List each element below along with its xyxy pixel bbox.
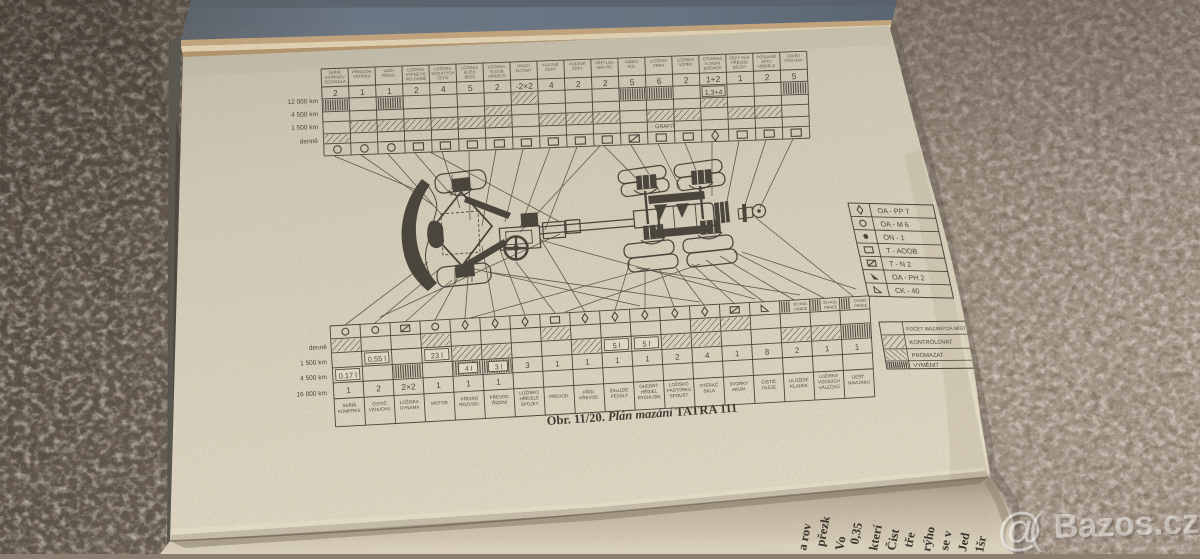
svg-text:20 HOD.: 20 HOD. (793, 302, 808, 307)
svg-text:VZPĚR: VZPĚR (679, 61, 693, 66)
svg-text:KOL: KOL (628, 64, 637, 69)
svg-text:0,17 l: 0,17 l (338, 371, 357, 381)
svg-text:4 500 km: 4 500 km (300, 374, 327, 382)
svg-text:T - AOOB: T - AOOB (885, 246, 918, 256)
svg-text:5: 5 (630, 77, 635, 87)
svg-text:4: 4 (441, 84, 446, 94)
svg-text:PRÁCE: PRÁCE (824, 305, 838, 310)
svg-text:VÁLEČKŮ: VÁLEČKŮ (819, 383, 840, 390)
svg-text:23 l: 23 l (431, 351, 444, 361)
svg-text:57HOD.: 57HOD. (853, 298, 867, 303)
svg-text:1+2: 1+2 (706, 74, 721, 85)
svg-text:BOČNICE: BOČNICE (704, 65, 723, 71)
svg-text:2: 2 (376, 383, 382, 393)
svg-text:5: 5 (792, 71, 797, 81)
svg-text:2: 2 (495, 82, 500, 92)
svg-text:2: 2 (333, 88, 338, 98)
svg-text:1: 1 (436, 380, 442, 390)
svg-text:ON - 1: ON - 1 (882, 233, 905, 242)
svg-text:ČEPY: ČEPY (572, 65, 583, 70)
svg-text:CK - 40: CK - 40 (894, 286, 920, 295)
svg-text:PRO NÁV: PRO NÁV (784, 57, 803, 63)
svg-text:KLADEK: KLADEK (790, 383, 808, 389)
svg-text:2: 2 (576, 79, 581, 89)
svg-text:PERA: PERA (653, 63, 664, 68)
svg-text:1: 1 (360, 87, 365, 97)
svg-text:tře: tře (901, 530, 918, 548)
svg-text:2: 2 (684, 75, 689, 85)
svg-text:DYNAMA: DYNAMA (400, 405, 420, 411)
svg-text:VYMĚNIT: VYMĚNIT (913, 361, 941, 369)
svg-text:HŘÍDELŮ: HŘÍDELŮ (488, 73, 506, 79)
svg-text:POČET MAZANÝCH MÍST: POČET MAZANÝCH MÍST (906, 325, 967, 333)
svg-text:BRZD: BRZD (464, 74, 475, 79)
svg-text:2×2: 2×2 (401, 381, 416, 392)
svg-text:NAVIJÁKU: NAVIJÁKU (848, 378, 870, 385)
svg-text:KLOUBY: KLOUBY (515, 67, 532, 73)
svg-text:20 HOD.: 20 HOD. (823, 300, 838, 305)
svg-text:Bazos.cz: Bazos.cz (1053, 503, 1200, 546)
svg-text:SKLA: SKLA (703, 388, 715, 394)
svg-text:4 500 km: 4 500 km (291, 111, 318, 119)
svg-text:2: 2 (603, 78, 608, 88)
svg-text:MOTOR: MOTOR (431, 400, 449, 406)
svg-text:SPOJKY: SPOJKY (521, 401, 539, 407)
svg-text:1: 1 (387, 86, 392, 96)
svg-text:0,55 l: 0,55 l (367, 354, 386, 364)
svg-text:2: 2 (765, 72, 770, 82)
svg-text:denně: denně (300, 138, 319, 146)
svg-text:(: ( (1028, 507, 1044, 553)
svg-text:VSTŘIKU: VSTŘIKU (353, 73, 371, 79)
svg-text:HMY ŘÍZ: HMY ŘÍZ (596, 64, 613, 70)
svg-text:6: 6 (657, 76, 662, 86)
svg-text:PEDÁLY: PEDÁLY (610, 392, 628, 399)
svg-text:12 000 km: 12 000 km (287, 98, 318, 106)
svg-text:SPOUŠT.: SPOUŠT. (670, 391, 690, 398)
svg-text:ČEPY: ČEPY (545, 66, 556, 71)
svg-text:PROMAZAT: PROMAZAT (911, 353, 944, 359)
svg-text:POLOVINĚ: POLOVINĚ (406, 76, 427, 82)
svg-text:OA - PP 7: OA - PP 7 (877, 206, 911, 216)
svg-text:HŘÍDELE: HŘÍDELE (758, 63, 776, 69)
svg-text:1: 1 (466, 378, 472, 388)
svg-text:1: 1 (496, 377, 502, 387)
svg-text:AKUM.: AKUM. (732, 386, 747, 392)
svg-text:1: 1 (738, 73, 743, 83)
svg-text:OLEJE: OLEJE (762, 385, 777, 391)
svg-text:PRÁCE: PRÁCE (794, 307, 808, 312)
svg-text:PRÁCE: PRÁCE (854, 303, 868, 308)
svg-text:4 l: 4 l (465, 366, 473, 373)
svg-text:5 l: 5 l (612, 341, 621, 350)
svg-text:1 500 km: 1 500 km (291, 124, 318, 132)
svg-text:5 l: 5 l (642, 339, 651, 348)
svg-text:ČERPADLA: ČERPADLA (324, 79, 346, 85)
svg-text:T - N 2: T - N 2 (888, 259, 912, 268)
svg-text:2: 2 (414, 85, 419, 95)
svg-text:1: 1 (346, 385, 352, 395)
svg-text:5: 5 (468, 83, 473, 93)
svg-text:KONTROLOVAT: KONTROLOVAT (909, 340, 953, 346)
svg-text:· GRAFIT: · GRAFIT (652, 124, 676, 131)
svg-text:1 500 km: 1 500 km (300, 359, 327, 367)
svg-text:REGUL: REGUL (382, 72, 397, 78)
svg-text:BRZDY: BRZDY (733, 64, 747, 70)
svg-text:-2×2: -2×2 (515, 81, 533, 92)
svg-text:4: 4 (549, 80, 554, 90)
svg-text:OA - PH 2: OA - PH 2 (891, 273, 925, 283)
svg-text:ČEPŮ: ČEPŮ (437, 75, 448, 80)
svg-text:OA - M 6: OA - M 6 (879, 219, 909, 229)
svg-text:denně: denně (309, 344, 328, 352)
svg-text:3 l: 3 l (495, 364, 503, 371)
